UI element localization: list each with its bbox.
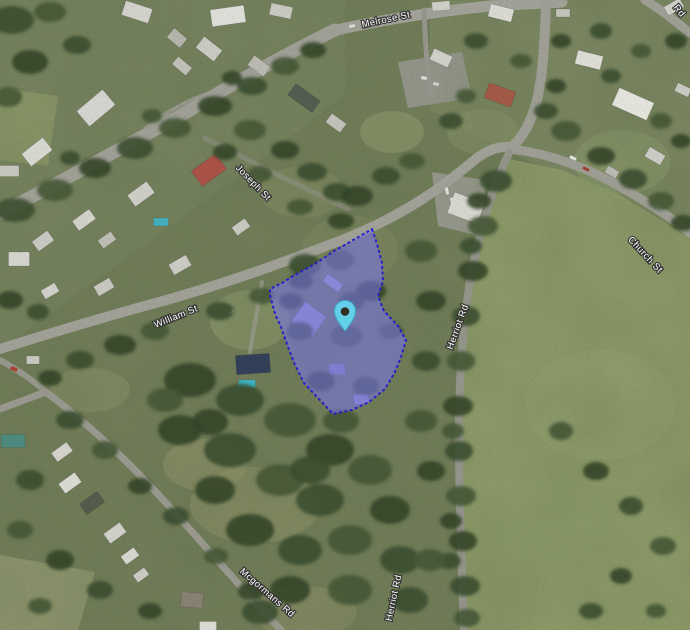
aerial-map[interactable]: Melrose StJoseph StWilliam StHerriot RdC… xyxy=(0,0,690,630)
map-view[interactable]: Melrose StJoseph StWilliam StHerriot RdC… xyxy=(0,0,690,630)
pin-dot xyxy=(341,307,350,316)
